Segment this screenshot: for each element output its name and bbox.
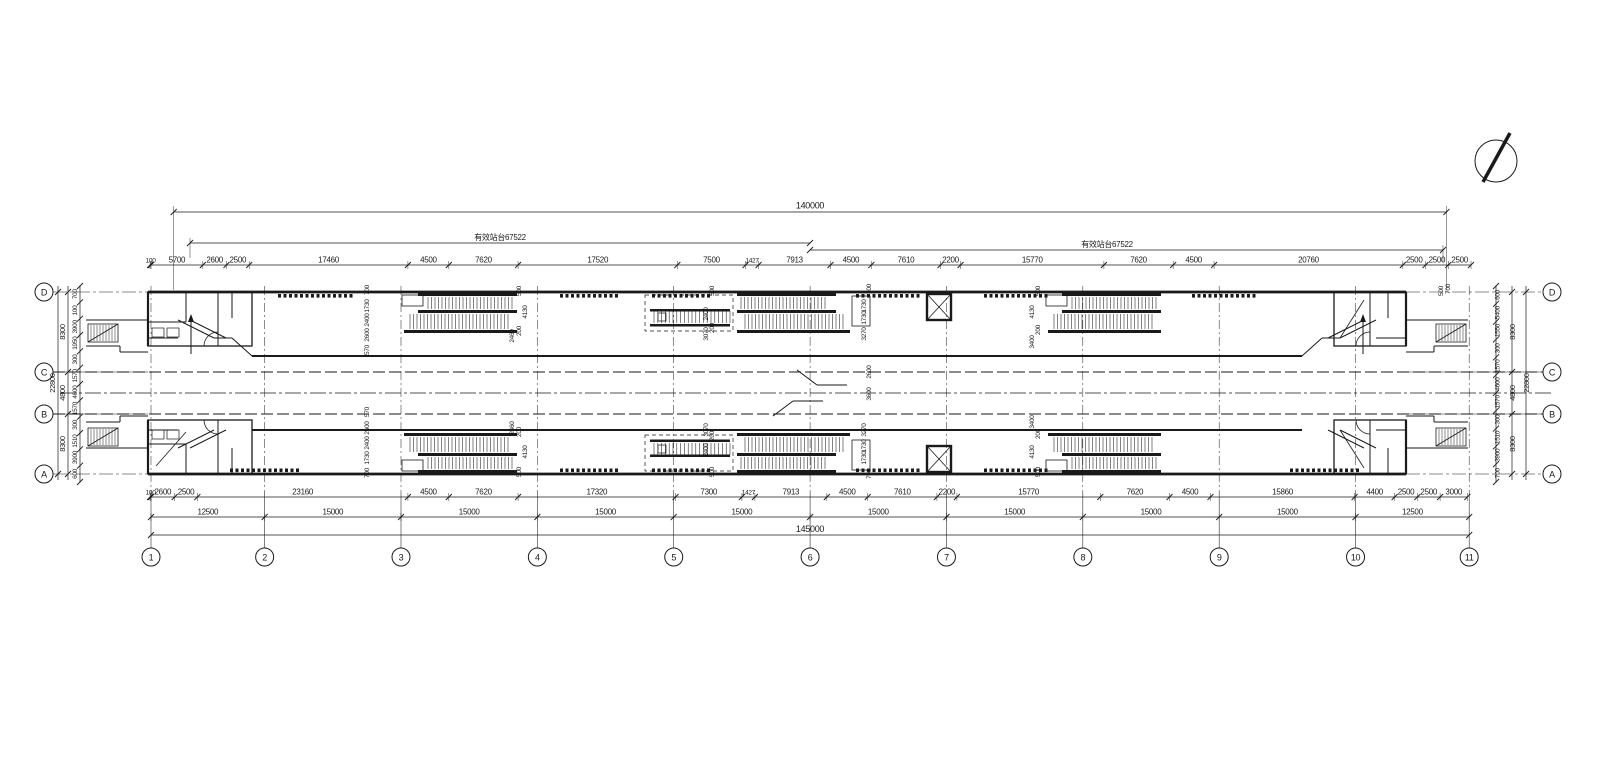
- escalator-bar: [737, 310, 836, 313]
- grid-bubble-label: 8: [1080, 553, 1085, 563]
- plan-dimension-label: 3070: [703, 327, 710, 341]
- tactile-strip-dot: [571, 469, 574, 473]
- tactile-strip-dot: [344, 294, 347, 298]
- tactile-strip-dot: [685, 294, 688, 298]
- dimension-label: 3900: [72, 320, 79, 334]
- dimension-label: 1950: [72, 336, 79, 350]
- tactile-strip-dot: [1017, 469, 1020, 473]
- dimension-label: 100: [146, 258, 157, 265]
- plan-dimension-label: 500: [709, 466, 716, 477]
- tactile-strip-dot: [230, 469, 233, 473]
- plan-dimension-label: 700: [364, 467, 371, 478]
- plan-dimension-label: 570: [364, 406, 371, 417]
- stair-fixture: [658, 313, 666, 321]
- tactile-strip-dot: [856, 294, 859, 298]
- tactile-strip-dot: [1318, 469, 1321, 473]
- stair-diagonal: [156, 432, 186, 466]
- plan-dimension-label: 1730: [861, 451, 868, 465]
- tactile-strip-dot: [669, 294, 672, 298]
- tactile-strip-dot: [680, 469, 683, 473]
- dimension-label: 1550: [1495, 323, 1502, 337]
- dimension-label: 7500: [703, 256, 720, 265]
- dimension-label: 4600: [1495, 377, 1502, 391]
- tactile-strip-dot: [1001, 294, 1004, 298]
- dimension-label: 1427: [742, 490, 756, 497]
- plan-dimension-label: 3400: [1029, 415, 1036, 429]
- dimension-label: 4500: [843, 256, 860, 265]
- plan-dimension-label: 1730: [364, 299, 371, 313]
- escalator-bar: [1062, 293, 1161, 296]
- dimension-label: 1510: [1495, 430, 1502, 444]
- dimension-label: 2200: [942, 256, 959, 265]
- dimension-label: 4800: [1508, 385, 1517, 401]
- tactile-strip-dot: [1023, 294, 1026, 298]
- dimension-label: 4800: [58, 385, 67, 401]
- plan-dimension-label: 2460: [509, 421, 516, 435]
- dimension-label: 700: [1495, 467, 1502, 478]
- grid-bubble-label: 3: [399, 553, 404, 563]
- dimension-label: 3900: [72, 450, 79, 464]
- escalator-bar: [737, 470, 836, 473]
- tactile-strip-dot: [604, 469, 607, 473]
- dimension-label: 17320: [586, 488, 608, 497]
- tactile-strip-dot: [560, 469, 563, 473]
- tactile-strip-dot: [917, 469, 920, 473]
- tactile-strip-dot: [295, 294, 298, 298]
- grid-bubble-label: C: [41, 368, 48, 378]
- plan-dimension-label: 2400: [703, 307, 710, 321]
- escalator-bar: [1048, 330, 1161, 333]
- tactile-strip-dot: [577, 469, 580, 473]
- tactile-strip-dot: [289, 294, 292, 298]
- plan-dimension-label: 200: [1035, 428, 1042, 439]
- dimension-label: 2500: [1451, 256, 1468, 265]
- plan-dimension-label: 700: [866, 468, 873, 479]
- grid-bubble-label: 5: [671, 553, 676, 563]
- tactile-strip-dot: [582, 469, 585, 473]
- tactile-strip-dot: [1006, 294, 1009, 298]
- dimension-label: 17520: [587, 256, 609, 265]
- plan-dimension-label: 2400: [703, 443, 710, 457]
- dimension-label: 7913: [783, 488, 800, 497]
- corridor-line: [232, 338, 252, 356]
- plan-dimension-label: 4130: [1029, 445, 1036, 459]
- tactile-strip-dot: [906, 469, 909, 473]
- dimension-label: 15000: [732, 508, 754, 517]
- escalator-bar: [737, 330, 850, 333]
- dimension-label: 1570: [72, 401, 79, 415]
- plan-dimension-label: 700: [364, 284, 371, 295]
- tactile-strip-dot: [593, 294, 596, 298]
- tactile-strip-dot: [1340, 469, 1343, 473]
- dimension-label: 8300: [58, 436, 67, 452]
- entrance-arrow-head: [1360, 314, 1366, 322]
- tactile-strip-dot: [296, 469, 299, 473]
- plan-dimension-label: 2600: [364, 421, 371, 435]
- tactile-strip-dot: [306, 294, 309, 298]
- tactile-strip-dot: [1334, 469, 1337, 473]
- room-fixture: [152, 430, 164, 439]
- grid-bubble-label: D: [41, 288, 48, 298]
- plan-dimension-label: 1730: [861, 439, 868, 453]
- dimension-label: 100: [72, 305, 79, 316]
- dimension-label: 140000: [796, 201, 825, 211]
- tactile-strip-dot: [560, 294, 563, 298]
- plan-dimension-label: 200: [709, 430, 716, 441]
- dimension-label: 7300: [700, 488, 717, 497]
- tactile-strip-dot: [599, 469, 602, 473]
- tactile-strip-dot: [990, 469, 993, 473]
- tactile-strip-dot: [1028, 469, 1031, 473]
- grid-bubble-label: A: [41, 470, 47, 480]
- room-fixture: [167, 328, 179, 337]
- tactile-strip-dot: [652, 469, 655, 473]
- plan-dimension-label: 200: [516, 325, 523, 336]
- dimension-label: 1510: [72, 434, 79, 448]
- dimension-label: 300: [1495, 343, 1502, 354]
- tactile-strip-dot: [911, 469, 914, 473]
- tactile-strip-dot: [663, 294, 666, 298]
- escalator-bar: [1062, 310, 1161, 313]
- grid-bubble-label: 11: [1465, 553, 1474, 563]
- tactile-strip-dot: [577, 294, 580, 298]
- tactile-strip-dot: [588, 469, 591, 473]
- tactile-strip-dot: [680, 294, 683, 298]
- escalator-bar: [404, 330, 517, 333]
- dimension-label: 15000: [1141, 508, 1163, 517]
- dimension-label: 5700: [169, 256, 186, 265]
- tactile-strip-dot: [702, 294, 705, 298]
- tactile-strip-dot: [1198, 294, 1201, 298]
- dimension-label: 4400: [1366, 488, 1383, 497]
- equipment-room: [148, 420, 252, 474]
- tactile-strip-dot: [566, 294, 569, 298]
- dimension-label: 8300: [1508, 436, 1517, 452]
- tactile-strip-dot: [252, 469, 255, 473]
- tactile-strip-dot: [1045, 469, 1048, 473]
- stair-fixture: [658, 445, 666, 453]
- tactile-strip-dot: [269, 469, 272, 473]
- escalator-bar: [1062, 470, 1161, 473]
- escalator-machine-box: [402, 460, 423, 471]
- tactile-strip-dot: [610, 294, 613, 298]
- dimension-label: 4500: [1182, 488, 1199, 497]
- plan-dimension-label: 500: [1035, 285, 1042, 296]
- tactile-strip-dot: [1351, 469, 1354, 473]
- plan-dimension-label: 500: [1035, 466, 1042, 477]
- plan-dimension-label: 1730: [861, 299, 868, 313]
- door-swing-arc: [1356, 420, 1370, 434]
- tactile-strip-dot: [1323, 469, 1326, 473]
- plan-dimension-label: 500: [516, 285, 523, 296]
- dimension-label: 600: [72, 468, 79, 479]
- dimension-label: 1570: [72, 369, 79, 383]
- plan-dimension-label: 700: [866, 283, 873, 294]
- room-fixture: [152, 328, 164, 337]
- corridor-line: [1302, 338, 1322, 356]
- tactile-strip-dot: [236, 469, 239, 473]
- tactile-strip-dot: [258, 469, 261, 473]
- room-fixture: [167, 430, 179, 439]
- plan-dimension-label: 2600: [364, 328, 371, 342]
- grid-bubble-label: D: [1549, 288, 1556, 298]
- tactile-strip-dot: [1356, 469, 1359, 473]
- plan-dimension-label: 3400: [1029, 335, 1036, 349]
- tactile-strip-dot: [1012, 294, 1015, 298]
- dimension-label: 8300: [58, 324, 67, 340]
- plan-dimension-label: 1730: [364, 451, 371, 465]
- dimension-label: 17460: [318, 256, 340, 265]
- platform-length-label: 有效站台67522: [1081, 239, 1133, 249]
- escalator-bar: [418, 453, 517, 456]
- tactile-strip-dot: [995, 294, 998, 298]
- grid-bubble-label: B: [41, 410, 47, 420]
- tactile-strip-dot: [674, 469, 677, 473]
- tactile-strip-dot: [1301, 469, 1304, 473]
- escalator-bar: [737, 293, 836, 296]
- plan-dimension-label: 700: [1445, 283, 1452, 294]
- tactile-strip-dot: [917, 294, 920, 298]
- station-plan-svg: 1234567891011DDCCBBAA140000有效站台67522有效站台…: [0, 0, 1623, 778]
- plan-dimension-label: 3270: [861, 327, 868, 341]
- dimension-label: 2500: [1398, 488, 1415, 497]
- dimension-label: 600: [1495, 289, 1502, 300]
- escalator-machine-box: [402, 295, 423, 306]
- tactile-strip-dot: [1023, 469, 1026, 473]
- dimension-label: 1427: [745, 258, 759, 265]
- tactile-strip-dot: [1312, 469, 1315, 473]
- dimension-label: 7620: [1127, 488, 1144, 497]
- grid-bubble-label: C: [1549, 368, 1556, 378]
- tactile-strip-dot: [658, 469, 661, 473]
- dimension-label: 22800: [48, 373, 57, 392]
- dimension-label: 15000: [1004, 508, 1026, 517]
- tactile-strip-dot: [1045, 294, 1048, 298]
- tactile-strip-dot: [615, 294, 618, 298]
- tactile-strip-dot: [322, 294, 325, 298]
- tactile-strip-dot: [582, 294, 585, 298]
- dimension-label: 2500: [1406, 256, 1423, 265]
- tactile-strip-dot: [1192, 294, 1195, 298]
- plan-dimension-label: 2460: [509, 329, 516, 343]
- stair-bar: [650, 455, 730, 458]
- dimension-label: 20760: [1298, 256, 1320, 265]
- tactile-strip-dot: [1225, 294, 1228, 298]
- tactile-strip-dot: [984, 469, 987, 473]
- plan-dimension-label: 3270: [861, 423, 868, 437]
- dimension-label: 145000: [796, 524, 825, 534]
- tactile-strip-dot: [1231, 294, 1234, 298]
- grid-bubble-label: 2: [262, 553, 267, 563]
- plan-dimension-label: 500: [709, 285, 716, 296]
- plan-dimension-label: 4130: [522, 445, 529, 459]
- tactile-strip-dot: [862, 469, 865, 473]
- tactile-strip-dot: [878, 294, 881, 298]
- tactile-strip-dot: [696, 469, 699, 473]
- tactile-strip-dot: [317, 294, 320, 298]
- plan-dimension-label: 3600: [866, 387, 873, 401]
- dimension-label: 2500: [178, 488, 195, 497]
- plan-dimension-label: 4130: [522, 305, 529, 319]
- tactile-strip-dot: [280, 469, 283, 473]
- tactile-strip-dot: [285, 469, 288, 473]
- tactile-strip-dot: [900, 469, 903, 473]
- dimension-label: 7620: [475, 488, 492, 497]
- tactile-strip-dot: [291, 469, 294, 473]
- tactile-strip-dot: [350, 294, 353, 298]
- stair-bar: [650, 440, 730, 443]
- dimension-label: 2600: [155, 488, 172, 497]
- dimension-label: 7610: [898, 256, 915, 265]
- tactile-strip-dot: [1329, 469, 1332, 473]
- cad-drawing-canvas: 1234567891011DDCCBBAA140000有效站台67522有效站台…: [0, 0, 1623, 778]
- dimension-label: 7620: [475, 256, 492, 265]
- escalator-bar: [737, 453, 836, 456]
- tactile-strip-dot: [652, 294, 655, 298]
- grid-bubble-label: 7: [944, 553, 949, 563]
- tactile-strip-dot: [995, 469, 998, 473]
- tactile-strip-dot: [702, 469, 705, 473]
- grid-bubble-label: 1: [149, 553, 154, 563]
- tactile-strip-dot: [911, 294, 914, 298]
- grid-bubble-label: 10: [1351, 553, 1361, 563]
- tactile-strip-dot: [878, 469, 881, 473]
- tactile-strip-dot: [674, 294, 677, 298]
- dimension-label: 2600: [206, 256, 223, 265]
- grid-bubble-label: B: [1549, 410, 1555, 420]
- tactile-strip-dot: [1214, 294, 1217, 298]
- dimension-label: 300: [72, 419, 79, 430]
- tactile-strip-dot: [1028, 294, 1031, 298]
- plan-dimension-label: 570: [364, 344, 371, 355]
- tactile-strip-dot: [900, 294, 903, 298]
- escalator-bar: [737, 433, 850, 436]
- dimension-label: 12500: [197, 508, 219, 517]
- dimension-label: 15000: [595, 508, 617, 517]
- tactile-strip-dot: [588, 294, 591, 298]
- escalator-bar: [418, 293, 517, 296]
- plan-dimension-label: 2400: [364, 436, 371, 450]
- tactile-strip-dot: [856, 469, 859, 473]
- escalator-machine-box: [1046, 460, 1067, 471]
- tactile-strip-dot: [1290, 469, 1293, 473]
- tactile-strip-dot: [906, 294, 909, 298]
- dimension-label: 8300: [1508, 324, 1517, 340]
- escalator-bar: [418, 470, 517, 473]
- dimension-label: 700: [72, 289, 79, 300]
- tactile-strip-dot: [1247, 294, 1250, 298]
- tactile-strip-dot: [274, 469, 277, 473]
- entrance-arrow-head: [188, 314, 194, 322]
- tactile-strip-dot: [1001, 469, 1004, 473]
- dimension-label: 7913: [786, 256, 803, 265]
- tactile-strip-dot: [615, 469, 618, 473]
- platform-length-label: 有效站台67522: [474, 232, 526, 242]
- tactile-strip-dot: [1236, 294, 1239, 298]
- dimension-label: 300: [1495, 414, 1502, 425]
- dimension-label: 4500: [420, 256, 437, 265]
- door-swing-arc: [204, 420, 218, 434]
- tactile-strip-dot: [571, 294, 574, 298]
- tactile-strip-dot: [333, 294, 336, 298]
- dimension-label: 7610: [894, 488, 911, 497]
- stair-bar: [650, 324, 730, 327]
- dimension-label: 4500: [420, 488, 437, 497]
- dimension-label: 15000: [868, 508, 890, 517]
- tactile-strip-dot: [1017, 294, 1020, 298]
- tactile-strip-dot: [263, 469, 266, 473]
- tactile-strip-dot: [696, 294, 699, 298]
- tactile-strip-dot: [990, 294, 993, 298]
- tactile-strip-dot: [1203, 294, 1206, 298]
- plan-dimension-label: 500: [1438, 285, 1445, 296]
- plan-dimension-label: 2600: [866, 365, 873, 379]
- tactile-strip-dot: [339, 294, 342, 298]
- dimension-label: 15000: [1277, 508, 1299, 517]
- tactile-strip-dot: [1242, 294, 1245, 298]
- tactile-strip-dot: [889, 294, 892, 298]
- dimension-label: 15000: [322, 508, 344, 517]
- tactile-strip-dot: [247, 469, 250, 473]
- dimension-label: 4500: [839, 488, 856, 497]
- dimension-label: 5400: [1495, 305, 1502, 319]
- plan-dimension-label: 200: [516, 426, 523, 437]
- grid-bubble-label: 6: [808, 553, 813, 563]
- tactile-strip-dot: [566, 469, 569, 473]
- tactile-strip-dot: [663, 469, 666, 473]
- tactile-strip-dot: [278, 294, 281, 298]
- tactile-strip-dot: [1012, 469, 1015, 473]
- tactile-strip-dot: [1345, 469, 1348, 473]
- dimension-label: 300: [72, 354, 79, 365]
- tactile-strip-dot: [691, 294, 694, 298]
- escalator-bar: [1062, 453, 1161, 456]
- tactile-strip-dot: [895, 469, 898, 473]
- tactile-strip-dot: [1307, 469, 1310, 473]
- tactile-strip-dot: [884, 469, 887, 473]
- dimension-label: 15770: [1018, 488, 1040, 497]
- plan-dimension-label: 4130: [1029, 305, 1036, 319]
- tactile-strip-dot: [691, 469, 694, 473]
- dimension-label: 12500: [1402, 508, 1424, 517]
- tactile-strip-dot: [1296, 469, 1299, 473]
- plan-dimension-label: 1730: [861, 311, 868, 325]
- dimension-label: 1570: [1495, 359, 1502, 373]
- grid-bubble-label: 4: [535, 553, 540, 563]
- stair-bar: [650, 309, 730, 312]
- dimension-label: 3900: [1495, 448, 1502, 462]
- grid-bubble-label: A: [1549, 470, 1555, 480]
- tactile-strip-dot: [604, 294, 607, 298]
- dimension-label: 4500: [1185, 256, 1202, 265]
- grid-bubble-label: 9: [1217, 553, 1222, 563]
- dimension-label: 2500: [1429, 256, 1446, 265]
- tactile-strip-dot: [658, 294, 661, 298]
- tactile-strip-dot: [1209, 294, 1212, 298]
- dimension-label: 7620: [1130, 256, 1147, 265]
- escalator-bar: [418, 310, 517, 313]
- escalator-bar: [1048, 433, 1161, 436]
- tactile-strip-dot: [241, 469, 244, 473]
- tactile-strip-dot: [1220, 294, 1223, 298]
- tactile-strip-dot: [599, 294, 602, 298]
- tactile-strip-dot: [593, 469, 596, 473]
- dimension-label: 15770: [1022, 256, 1044, 265]
- dimension-label: 4600: [72, 385, 79, 399]
- tactile-strip-dot: [889, 469, 892, 473]
- dimension-label: 2500: [230, 256, 247, 265]
- tactile-strip-dot: [610, 469, 613, 473]
